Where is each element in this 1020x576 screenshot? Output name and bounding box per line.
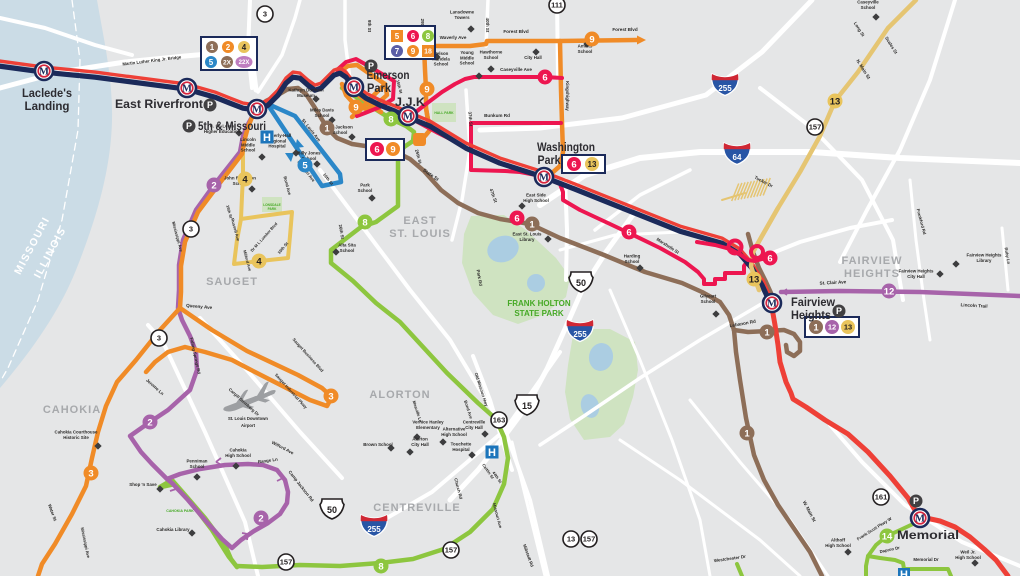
svg-text:2X: 2X [223,59,232,66]
svg-text:64: 64 [733,153,742,162]
svg-text:School: School [315,113,330,118]
svg-text:Historic Site: Historic Site [63,435,89,440]
svg-text:City Hall: City Hall [465,425,483,430]
svg-text:SAUGET: SAUGET [206,276,258,288]
svg-text:M: M [767,299,777,310]
svg-text:111: 111 [551,1,563,10]
svg-text:161: 161 [875,493,888,502]
svg-text:14: 14 [882,531,893,542]
svg-text:6: 6 [767,253,772,264]
svg-text:3: 3 [328,391,333,402]
svg-text:50: 50 [576,278,586,288]
svg-text:City Hall: City Hall [907,274,925,279]
svg-text:Elementary: Elementary [416,425,440,430]
svg-text:1: 1 [813,322,819,333]
svg-text:High School: High School [441,432,467,437]
svg-text:Laclede's: Laclede's [22,86,72,100]
svg-text:School: School [701,299,716,304]
svg-text:H: H [488,447,496,459]
svg-text:6: 6 [542,72,547,83]
svg-text:7: 7 [395,47,400,56]
svg-text:P: P [836,306,842,316]
svg-text:M: M [403,112,413,123]
svg-text:12: 12 [884,286,895,297]
svg-text:40th St: 40th St [485,18,490,33]
svg-text:6: 6 [411,32,416,41]
svg-text:High School: High School [225,453,251,458]
svg-text:3: 3 [263,10,267,19]
svg-text:9: 9 [390,144,395,155]
svg-text:Memorial Dr: Memorial Dr [913,557,939,562]
svg-text:13: 13 [830,96,841,107]
svg-text:8: 8 [378,561,383,572]
svg-text:CAHOKIA: CAHOKIA [43,404,101,416]
svg-text:East Riverfront: East Riverfront [115,97,203,111]
svg-text:1: 1 [324,123,330,134]
svg-text:22X: 22X [239,60,250,66]
svg-text:P: P [186,121,192,131]
svg-text:2: 2 [258,513,263,524]
svg-text:P: P [913,496,919,506]
svg-text:4: 4 [242,43,247,52]
svg-text:Museum: Museum [297,93,315,98]
svg-text:8: 8 [426,32,431,41]
svg-text:3: 3 [157,334,161,343]
svg-text:High School: High School [955,555,981,560]
svg-text:STATE PARK: STATE PARK [514,309,564,318]
svg-text:13: 13 [588,160,597,169]
svg-text:Bunkum Rd: Bunkum Rd [484,113,510,118]
svg-text:8: 8 [388,114,393,125]
svg-text:M: M [252,105,262,116]
svg-text:1: 1 [210,43,215,52]
svg-text:M: M [915,514,925,525]
svg-text:2: 2 [211,180,216,191]
svg-text:1: 1 [764,327,770,338]
svg-text:School: School [484,55,499,60]
svg-text:13: 13 [567,535,575,544]
svg-text:H: H [900,569,908,576]
svg-text:HEIGHTS: HEIGHTS [844,268,900,280]
svg-text:2: 2 [147,417,152,428]
svg-text:5: 5 [395,32,400,41]
svg-text:School: School [434,62,449,67]
svg-text:9: 9 [424,84,429,95]
svg-text:Brown School: Brown School [363,442,393,447]
svg-text:9: 9 [411,47,416,56]
svg-text:Park: Park [367,81,391,95]
svg-text:St. Louis Downtown: St. Louis Downtown [228,416,268,421]
svg-text:School: School [340,248,355,253]
svg-text:Caseyville Ave: Caseyville Ave [500,67,532,72]
svg-text:Airport: Airport [241,423,256,428]
svg-text:City Hall: City Hall [411,442,429,447]
svg-text:School: School [333,130,348,135]
svg-text:255: 255 [367,525,381,534]
svg-text:Forest Blvd: Forest Blvd [503,29,528,34]
svg-text:157: 157 [583,535,596,544]
svg-text:Shop 'n Save: Shop 'n Save [129,482,157,487]
svg-text:157: 157 [280,558,293,567]
svg-text:CENTREVILLE: CENTREVILLE [373,502,460,514]
svg-text:163: 163 [493,416,506,425]
svg-text:Towers: Towers [454,15,470,20]
svg-text:Memorial: Memorial [897,528,959,542]
svg-text:13: 13 [844,323,852,332]
svg-text:Hospital: Hospital [452,447,469,452]
svg-text:High School: High School [523,198,549,203]
svg-text:Emerson: Emerson [367,68,410,82]
svg-text:ALORTON: ALORTON [369,389,430,401]
svg-text:3: 3 [189,225,193,234]
svg-text:6: 6 [374,144,379,155]
svg-text:Park: Park [538,153,561,167]
svg-text:50: 50 [327,505,337,515]
svg-text:Fairview: Fairview [791,295,836,309]
svg-text:18: 18 [424,49,432,56]
svg-text:6: 6 [571,159,576,170]
svg-text:FRANK HOLTON: FRANK HOLTON [507,299,570,308]
svg-text:13: 13 [749,274,760,285]
svg-text:High School: High School [825,543,851,548]
svg-text:4: 4 [256,256,262,267]
svg-text:9th St: 9th St [367,20,372,33]
svg-text:ST. LOUIS: ST. LOUIS [389,228,451,240]
svg-text:School: School [358,188,373,193]
svg-text:School: School [861,5,876,10]
svg-text:4: 4 [242,174,248,185]
svg-text:Waverly Ave: Waverly Ave [440,35,467,40]
svg-text:HALL PARK: HALL PARK [434,111,454,115]
svg-text:157: 157 [445,546,458,555]
svg-text:Library: Library [977,258,992,263]
svg-text:M: M [39,67,49,78]
svg-text:5: 5 [209,58,214,67]
svg-text:FAIRVIEW: FAIRVIEW [842,255,903,267]
svg-text:9: 9 [589,34,594,45]
svg-text:School: School [625,259,640,264]
svg-text:School: School [190,464,205,469]
svg-text:Landing: Landing [25,99,70,113]
svg-text:EAST: EAST [403,215,436,227]
svg-text:School: School [578,49,593,54]
svg-text:M: M [539,173,549,184]
svg-text:15: 15 [522,401,532,411]
svg-text:Cahokia Library: Cahokia Library [156,527,190,532]
svg-text:1: 1 [529,219,535,230]
svg-text:5th & Missouri: 5th & Missouri [198,119,266,133]
svg-text:PARK: PARK [268,207,277,211]
svg-text:M: M [182,84,192,95]
svg-text:CAHOKIA PARK: CAHOKIA PARK [166,509,194,513]
svg-text:Washington: Washington [537,140,595,154]
svg-text:H: H [263,132,271,144]
svg-text:Kingshighway: Kingshighway [565,81,570,111]
svg-text:12: 12 [828,323,836,332]
svg-text:9: 9 [353,102,358,113]
svg-text:Library: Library [520,237,535,242]
svg-text:1: 1 [744,428,750,439]
svg-text:City Hall: City Hall [524,55,542,60]
svg-text:M: M [349,83,359,94]
svg-text:157: 157 [809,123,822,132]
svg-text:J.J.K: J.J.K [395,95,425,109]
svg-text:8: 8 [362,217,367,228]
svg-text:Hospital: Hospital [268,144,285,149]
svg-text:6: 6 [626,227,631,238]
svg-text:School: School [241,148,256,153]
svg-text:2: 2 [226,43,231,52]
svg-text:255: 255 [573,330,587,339]
svg-text:255: 255 [718,84,732,93]
svg-text:School: School [460,61,475,66]
svg-text:Forest Blvd: Forest Blvd [612,27,637,32]
svg-text:Heights: Heights [791,308,831,322]
svg-text:P: P [207,100,213,110]
svg-text:6: 6 [514,213,519,224]
svg-text:3: 3 [88,468,93,479]
svg-text:5: 5 [302,160,308,171]
